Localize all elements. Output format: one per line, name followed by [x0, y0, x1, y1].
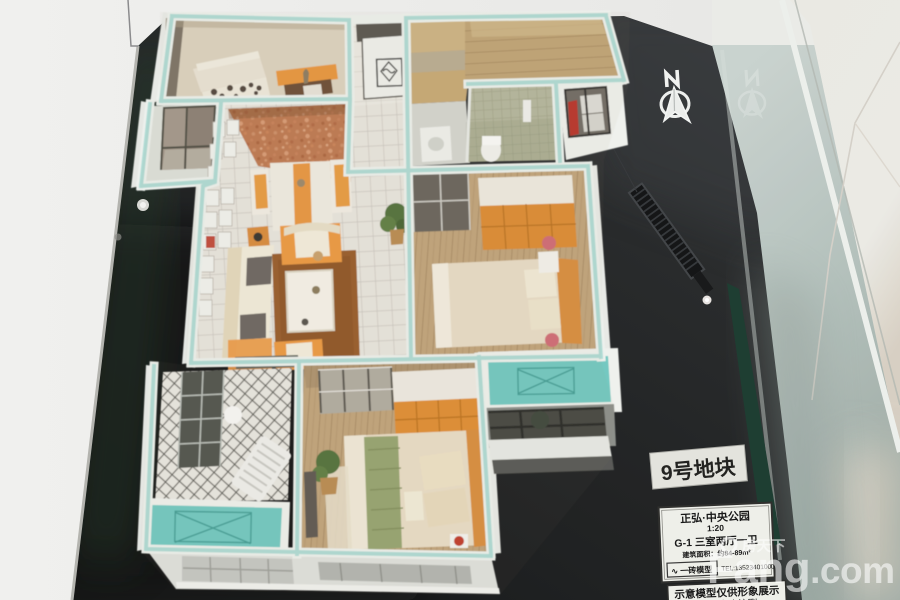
svg-text:Fang.com: Fang.com — [707, 544, 894, 593]
